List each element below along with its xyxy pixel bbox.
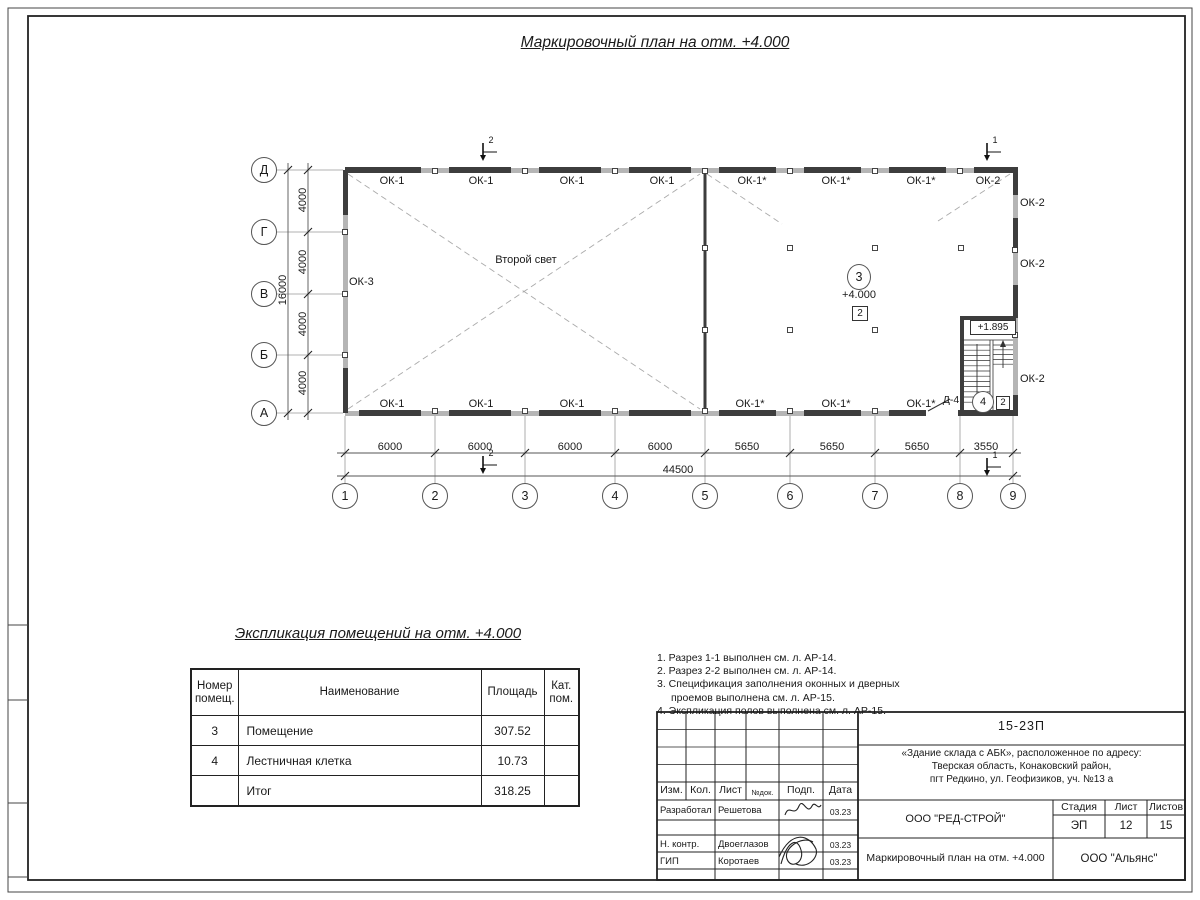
explication-header-row: Номер помещ. Наименование Площадь Кат. п… xyxy=(191,669,579,716)
roof-diagonal-stub xyxy=(938,174,1010,221)
doc-number: 15-23П xyxy=(858,719,1185,733)
notes-block: 1. Разрез 1-1 выполнен см. л. АР-14. 2. … xyxy=(657,652,900,718)
col-header-area: Площадь xyxy=(481,669,544,716)
window-top xyxy=(449,167,511,173)
role-date: 03.23 xyxy=(823,807,858,817)
window-top xyxy=(359,167,421,173)
grid-marker xyxy=(433,169,438,174)
grid-marker xyxy=(703,246,708,251)
cell-total-label: Итог xyxy=(238,776,481,807)
wall-stair-bottom xyxy=(958,410,1018,416)
project-address-line: Тверская область, Конаковский район, xyxy=(858,761,1185,772)
grid-marker xyxy=(343,353,348,358)
stamp-header-list: Лист xyxy=(715,784,746,796)
section-mark-arrow xyxy=(480,155,486,161)
cell-room-number: 4 xyxy=(191,746,238,776)
drawing-title: Маркировочный план на отм. +4.000 xyxy=(490,34,820,52)
stamp-header-kol: Кол. xyxy=(686,784,715,796)
stamp-header-data: Дата xyxy=(823,784,858,796)
section-mark-arrow xyxy=(984,155,990,161)
roof-diagonal-stub xyxy=(707,174,782,224)
grid-marker xyxy=(703,328,708,333)
grid-marker xyxy=(958,169,963,174)
note-line: 1. Разрез 1-1 выполнен см. л. АР-14. xyxy=(657,652,900,665)
cell-room-cat xyxy=(544,776,579,807)
sheets-total: 15 xyxy=(1147,820,1185,832)
grid-marker xyxy=(873,409,878,414)
cell-room-area: 307.52 xyxy=(481,716,544,746)
grid-marker xyxy=(703,169,708,174)
role-name: Решетова xyxy=(718,805,762,816)
project-address-line: «Здание склада с АБК», расположенное по … xyxy=(858,748,1185,759)
wall-seg xyxy=(1013,285,1018,318)
note-line: 3. Спецификация заполнения оконных и две… xyxy=(657,678,900,691)
sheet-outer-border xyxy=(8,8,1192,892)
project-address-line: пгт Редкино, ул. Геофизиков, уч. №13 а xyxy=(858,774,1185,785)
window-bottom xyxy=(889,410,926,416)
window-bottom xyxy=(359,410,421,416)
explication-title: Экспликация помещений на отм. +4.000 xyxy=(222,625,534,642)
grid-marker xyxy=(788,328,793,333)
note-line: 2. Разрез 2-2 выполнен см. л. АР-14. xyxy=(657,665,900,678)
stair-wall xyxy=(960,316,964,413)
window-top xyxy=(719,167,776,173)
cell-room-area: 10.73 xyxy=(481,746,544,776)
cell-room-name: Лестничная клетка xyxy=(238,746,481,776)
door-opening xyxy=(926,409,958,418)
contractor-company: ООО "Альянс" xyxy=(1053,853,1185,865)
stage-label: Стадия xyxy=(1053,801,1105,813)
design-company: ООО "РЕД-СТРОЙ" xyxy=(858,813,1053,825)
grid-marker xyxy=(343,230,348,235)
role-name: Коротаев xyxy=(718,856,759,867)
grid-marker xyxy=(959,246,964,251)
grid-marker xyxy=(873,169,878,174)
wall-middle xyxy=(704,170,707,413)
window-top xyxy=(804,167,861,173)
window-bottom xyxy=(629,410,691,416)
wall-corner xyxy=(343,170,348,215)
drawing-name: Маркировочный план на отм. +4.000 xyxy=(858,852,1053,864)
cell-room-cat xyxy=(544,746,579,776)
grid-marker xyxy=(1013,248,1018,253)
grid-marker xyxy=(873,328,878,333)
signature xyxy=(779,837,816,865)
section-mark-arrow xyxy=(984,470,990,476)
stage-value: ЭП xyxy=(1053,820,1105,832)
cell-room-number: 3 xyxy=(191,716,238,746)
sheets-label: Листов xyxy=(1147,801,1185,813)
grid-marker xyxy=(523,169,528,174)
role-date: 03.23 xyxy=(823,857,858,867)
window-top xyxy=(974,167,1000,173)
role-date: 03.23 xyxy=(823,840,858,850)
cell-room-number xyxy=(191,776,238,807)
explication-table: Номер помещ. Наименование Площадь Кат. п… xyxy=(190,668,580,807)
role-label: Н. контр. xyxy=(660,839,699,850)
note-line: 4. Экспликация полов выполнена см. л. АР… xyxy=(657,705,900,718)
stair-arrow-up xyxy=(1000,340,1006,347)
grid-marker xyxy=(613,409,618,414)
window-bottom xyxy=(804,410,861,416)
window-bottom xyxy=(449,410,511,416)
stair-wall xyxy=(960,316,1016,320)
wall-corner xyxy=(343,368,348,413)
signature xyxy=(785,804,821,815)
window-top xyxy=(889,167,946,173)
grid-marker xyxy=(1013,333,1018,338)
wall-seg xyxy=(1013,395,1018,413)
wall-seg xyxy=(1013,218,1018,252)
window-top xyxy=(629,167,691,173)
window-bottom xyxy=(719,410,776,416)
stamp-header-ndok: №док. xyxy=(746,788,779,797)
role-label: Разработал xyxy=(660,805,712,816)
grid-marker xyxy=(523,409,528,414)
grid-marker xyxy=(873,246,878,251)
cell-room-name: Помещение xyxy=(238,716,481,746)
col-header-name: Наименование xyxy=(238,669,481,716)
section-mark-arrow xyxy=(480,468,486,474)
stair-arrow-down xyxy=(974,402,980,409)
sheet-label: Лист xyxy=(1105,801,1147,813)
cell-room-cat xyxy=(544,716,579,746)
grid-marker xyxy=(613,169,618,174)
col-header-category: Кат. пом. xyxy=(544,669,579,716)
wall-seg xyxy=(1013,170,1018,195)
grid-marker xyxy=(788,409,793,414)
role-label: ГИП xyxy=(660,856,679,867)
stamp-header-podp: Подп. xyxy=(779,784,823,796)
grid-marker xyxy=(788,169,793,174)
table-row: 3 Помещение 307.52 xyxy=(191,716,579,746)
window-bottom xyxy=(539,410,601,416)
grid-marker xyxy=(433,409,438,414)
note-line: проемов выполнена см. л. АР-15. xyxy=(671,692,900,705)
grid-marker xyxy=(788,246,793,251)
role-name: Двоеглазов xyxy=(718,839,769,850)
table-row: 4 Лестничная клетка 10.73 xyxy=(191,746,579,776)
stamp-header-izm: Изм. xyxy=(657,784,686,796)
cell-total-area: 318.25 xyxy=(481,776,544,807)
sheet-number: 12 xyxy=(1105,820,1147,832)
table-row-total: Итог 318.25 xyxy=(191,776,579,807)
grid-marker xyxy=(343,292,348,297)
window-top xyxy=(539,167,601,173)
col-header-room-number: Номер помещ. xyxy=(191,669,238,716)
drawing-sheet: 2121ДГВБА123456789ОК-1ОК-1ОК-1ОК-1ОК-1*О… xyxy=(0,0,1200,900)
grid-marker xyxy=(703,409,708,414)
